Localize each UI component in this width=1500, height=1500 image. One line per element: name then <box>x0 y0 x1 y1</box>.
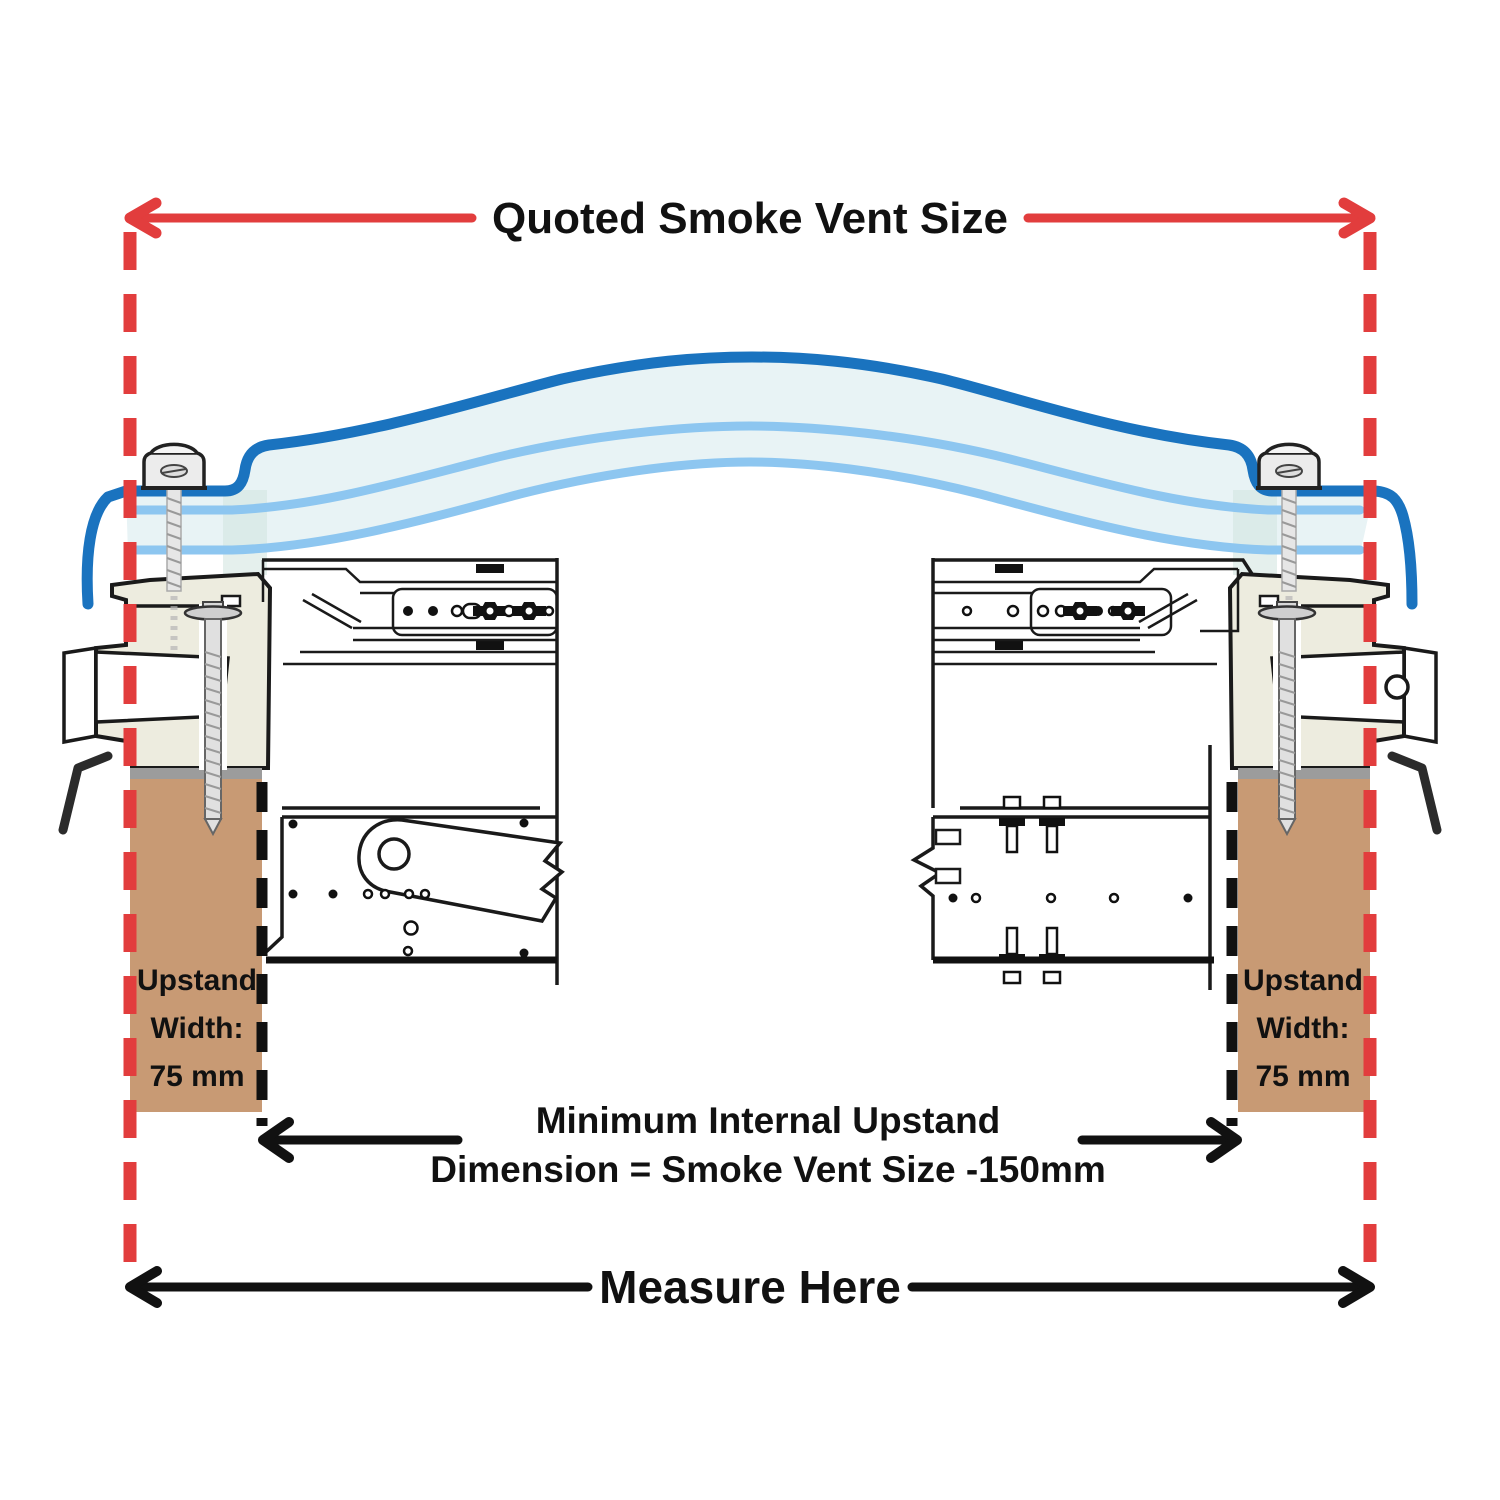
internal-dimension-line2: Dimension = Smoke Vent Size -150mm <box>430 1149 1106 1190</box>
glazing-edge-left <box>223 490 267 575</box>
upstand-left-line1: Upstand <box>137 964 257 997</box>
dome-glazing-fill <box>126 357 1374 554</box>
plate-bolt <box>1039 928 1065 983</box>
actuator-arm <box>359 820 562 921</box>
dome-glazing <box>87 357 1412 604</box>
upstand-right-line2: Width: <box>1256 1012 1349 1045</box>
left-outer-fin <box>64 648 96 742</box>
right-fixing-plate <box>914 745 1214 990</box>
right-sill <box>1238 768 1370 779</box>
right-cap-screw-thread <box>1282 488 1296 591</box>
smoke-vent-diagram: Quoted Smoke Vent Size Minimum Internal … <box>0 0 1500 1500</box>
right-outer-fin <box>1404 648 1436 742</box>
left-sill <box>130 768 262 779</box>
left-upstand-label: Upstand Width: 75 mm <box>137 964 257 1093</box>
upstand-right-line3: 75 mm <box>1255 1060 1350 1093</box>
left-cap-screw-thread <box>167 488 181 591</box>
plate-bolt <box>999 928 1025 983</box>
upstand-left-line2: Width: <box>150 1012 243 1045</box>
hinge-pin <box>1386 676 1408 698</box>
diagram-svg: Quoted Smoke Vent Size Minimum Internal … <box>0 0 1500 1500</box>
left-screw-cap <box>141 444 207 488</box>
arm-pivot <box>379 839 409 869</box>
right-frame-assembly <box>914 556 1437 1112</box>
upstand-left-line3: 75 mm <box>149 1060 244 1093</box>
measure-here-label: Measure Here <box>599 1261 901 1313</box>
quoted-size-label: Quoted Smoke Vent Size <box>492 194 1008 243</box>
upstand-right-line1: Upstand <box>1243 964 1363 997</box>
measure-here-dimension: Measure Here <box>130 1261 1370 1313</box>
left-roof-flashing <box>63 756 108 830</box>
right-screw-cap <box>1256 444 1322 488</box>
left-telescopic-rail <box>262 560 557 664</box>
right-roof-flashing <box>1392 756 1437 830</box>
plate-bolt <box>999 797 1025 852</box>
internal-dimension-line1: Minimum Internal Upstand <box>536 1100 1001 1141</box>
plate-bolt <box>1039 797 1065 852</box>
left-frame-assembly <box>63 556 562 1112</box>
left-actuator-plate <box>266 808 562 960</box>
glazing-edge-right <box>1233 490 1277 575</box>
right-upstand-label: Upstand Width: 75 mm <box>1243 964 1363 1093</box>
right-telescopic-rail <box>933 560 1252 664</box>
